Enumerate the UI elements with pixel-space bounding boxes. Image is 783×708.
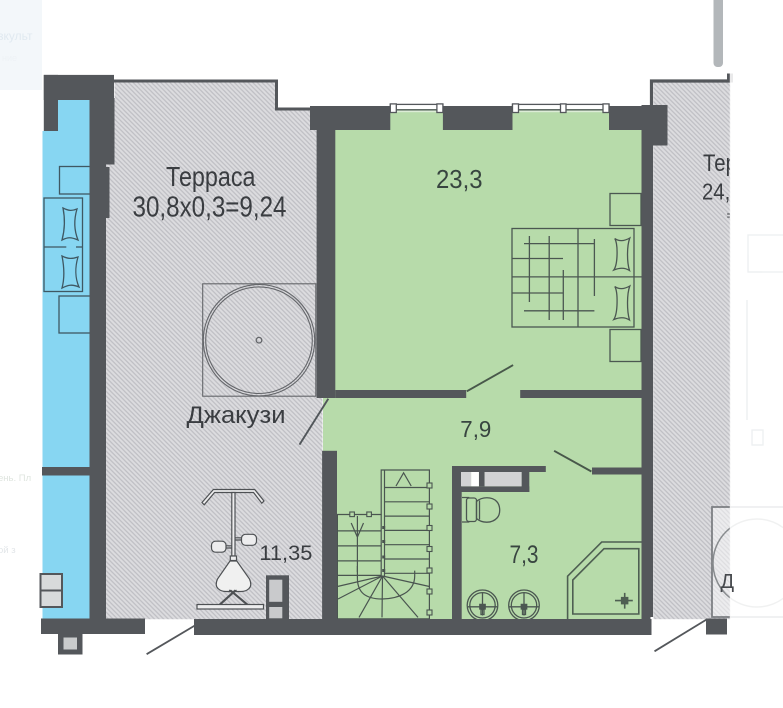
svg-text:ой з: ой з: [0, 545, 16, 556]
svg-text:Д: Д: [721, 571, 735, 593]
svg-text:ень. Пл: ень. Пл: [0, 473, 31, 484]
svg-text:30,8х0,3=9,24: 30,8х0,3=9,24: [133, 192, 287, 224]
svg-text:ние: ние: [2, 53, 17, 63]
svg-text:11,35: 11,35: [259, 542, 312, 565]
svg-text:23,3: 23,3: [436, 164, 483, 194]
svg-text:7,9: 7,9: [460, 416, 491, 442]
svg-text:Джакузи: Джакузи: [187, 402, 286, 429]
svg-text:7,3: 7,3: [510, 541, 539, 569]
svg-text:Терраса: Терраса: [166, 161, 256, 192]
svg-text:зкульт: зкульт: [0, 29, 33, 43]
